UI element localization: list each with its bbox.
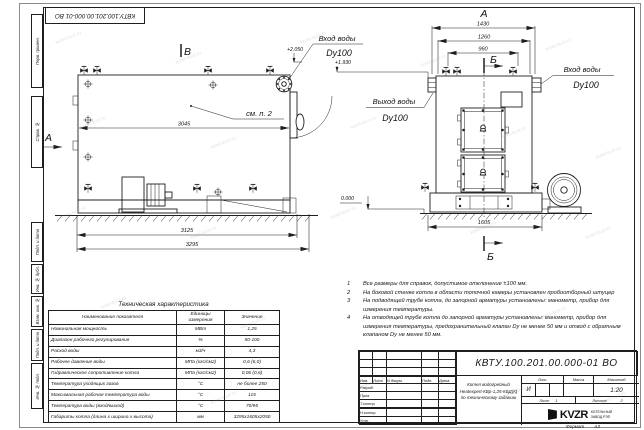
signature-grid: Изм. Лист N докум. Подп. Дата Разраб. Пр…: [359, 376, 457, 425]
lower-door: [458, 155, 509, 192]
valve-icon: [204, 66, 212, 74]
organization-cell: KVZR КОТЕЛЬНЫЙ ЗАВОД РЭП: [521, 404, 638, 425]
view-mark-B: В: [184, 46, 191, 58]
elev-outlet-label: +1.930: [335, 60, 351, 66]
dim-3125-label: 3125: [181, 228, 194, 234]
dim-1605-label: 1605: [478, 220, 491, 226]
side-dimensions: 3045 3125 3295: [77, 122, 309, 253]
spec-row: Максимальная рабочая температура воды°С1…: [49, 390, 280, 401]
inlet-dn-label: Dy100: [326, 48, 352, 58]
target-mark-icon: [84, 80, 93, 89]
inlet-flange: [532, 78, 541, 92]
valve-icon: [509, 67, 517, 75]
view-mark-A: А: [479, 8, 487, 20]
inlet-water-label: Вход воды: [319, 34, 356, 43]
front-view: 1430 1260 960 1605 А Б Б Вход воды D: [340, 8, 614, 263]
view-dir-A: А: [44, 132, 52, 144]
valve-icon: [80, 66, 88, 74]
spec-row: Номинальная мощностьМВт1,25: [49, 325, 280, 336]
dim-1430-label: 1430: [477, 22, 490, 28]
kvzr-logo-text: KVZR: [560, 409, 588, 421]
sheets-cell: Листов 2: [576, 397, 639, 404]
spec-row: Габариты котла (длина х ширина х высота)…: [49, 412, 280, 423]
valve-icon: [421, 183, 429, 191]
dim-960-label: 960: [478, 47, 488, 53]
valve-icon: [266, 66, 274, 74]
note-item: 3 На подводящей трубе котла, до запорной…: [344, 297, 636, 314]
elev-zero-label: 0.000: [341, 196, 354, 202]
see-note-ref: см. п. 2: [246, 109, 273, 118]
kvzr-logo-icon: [548, 409, 557, 420]
valve-icon: [84, 184, 92, 192]
note-item: 2 На боковой стенке котла в области топо…: [344, 289, 636, 298]
dim-3045-label: 3045: [178, 122, 191, 128]
inlet-water-label: Вход воды: [564, 65, 601, 74]
side-view: 3045 3125 3295 В А Вход воды Dy100 +2.05…: [44, 34, 428, 252]
tech-characteristics: Техническая характеристика Наименование …: [48, 301, 279, 423]
row-razrab: Разраб.: [360, 384, 387, 392]
valve-icon: [93, 66, 101, 74]
target-mark-icon: [214, 188, 223, 197]
section-mark-B-top: Б: [490, 54, 497, 66]
row-prov: Пров.: [360, 391, 387, 399]
drawing-sheet: Перв. примен. Справ. № Подп. и дата Инв.…: [0, 0, 644, 430]
spec-row: Температура воды (вход/выход)°С70/95: [49, 401, 280, 412]
spec-row: Расход водым3/ч4,3: [49, 346, 280, 357]
inlet-dn-label: Dy100: [573, 80, 599, 90]
dim-3295-label: 3295: [186, 242, 199, 248]
spec-row: Температура уходящих газов°Сне более 250: [49, 379, 280, 390]
target-mark-icon: [84, 116, 93, 125]
door-handle-icon: [480, 125, 485, 131]
boiler-base: [430, 193, 542, 212]
row-nkontr: Н.контр.: [360, 409, 387, 417]
massa-header: Масса: [564, 376, 594, 384]
lit-header: Лит.: [522, 376, 564, 384]
product-name: Котел водогрейный Heatexpert-КВр-1,25-КБ…: [455, 376, 521, 425]
col-header-units: Единицы измерения: [177, 311, 225, 325]
notes-list: 1 Все размеры для справок, допустимое от…: [344, 280, 636, 340]
elev-inlet-label: +2.050: [287, 47, 303, 53]
lit-value: И: [522, 384, 536, 397]
col-header-name: Наименование показателя: [49, 311, 177, 325]
massa-value: [564, 384, 594, 397]
valve-icon: [442, 67, 450, 75]
note-item: 4 На отводящей трубе котла до запорной а…: [344, 314, 636, 340]
outlet-water-label: Выход воды: [373, 97, 416, 106]
title-block: КВТУ.100.201.00.000-01 ВО Изм. Лист N до…: [358, 350, 637, 424]
upper-door: [458, 108, 509, 152]
scale-value: 1:20: [594, 384, 639, 397]
sheet-cell: Лист 1: [522, 397, 576, 404]
door-handle-icon: [480, 169, 485, 175]
row-tkontr: Т.контр.: [360, 399, 387, 407]
tech-table: Наименование показателя Единицы измерени…: [48, 310, 280, 423]
revision-grid: [359, 351, 457, 376]
target-mark-icon: [209, 81, 218, 90]
kvzr-logo-subtext: КОТЕЛЬНЫЙ ЗАВОД РЭП: [591, 410, 612, 418]
spec-row: Гидравлическое сопротивление котлаМПа (к…: [49, 368, 280, 379]
burner-unit: [119, 177, 177, 213]
scale-header: Масштаб: [594, 376, 639, 384]
outlet-dn-label: Dy100: [382, 113, 408, 123]
doc-number: КВТУ.100.201.00.000-01 ВО: [455, 351, 638, 376]
ground-hatch: [422, 214, 587, 220]
tech-table-title: Техническая характеристика: [48, 301, 279, 308]
ground-hatch: [57, 216, 310, 222]
section-mark-B-bottom: Б: [487, 251, 494, 263]
dim-1260-label: 1260: [478, 35, 491, 41]
note-item: 1 Все размеры для справок, допустимое от…: [344, 280, 636, 289]
valve-icon: [453, 67, 461, 75]
row-utv: Утв.: [360, 417, 387, 425]
format-label: Формат А3: [566, 424, 636, 429]
outlet-flange: [428, 78, 436, 92]
col-header-value: Значение: [225, 311, 280, 325]
fan: [542, 174, 581, 214]
spec-row: Рабочее давление водыМПа (кгс/см2)0,6 (6…: [49, 357, 280, 368]
nameplate: [501, 92, 522, 107]
target-mark-icon: [84, 153, 93, 162]
valve-icon: [193, 184, 201, 192]
valve-icon: [249, 184, 257, 192]
spec-row: Диапазон рабочего регулирования%50-100: [49, 335, 280, 346]
rear-door-open: [290, 92, 332, 138]
